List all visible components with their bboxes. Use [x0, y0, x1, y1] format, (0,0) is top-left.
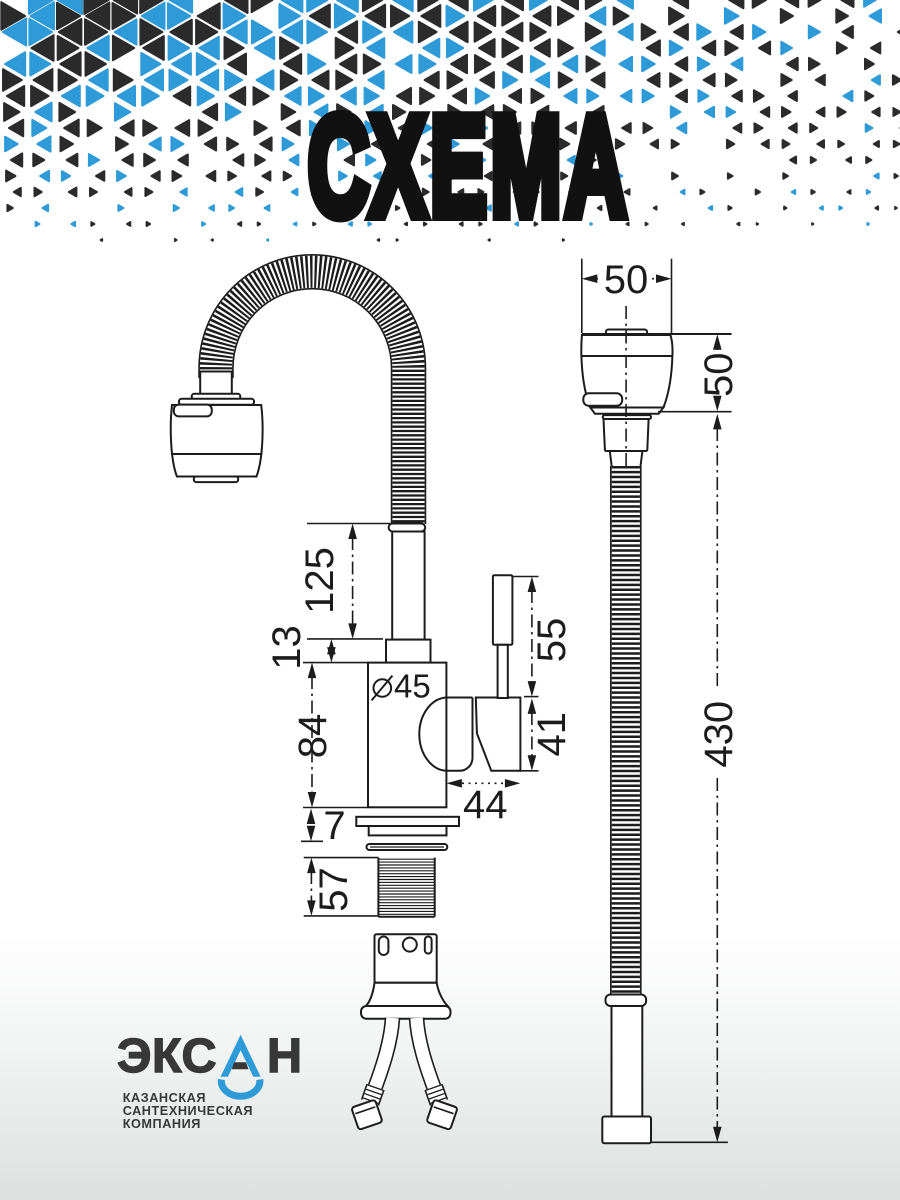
svg-text:Н: Н — [267, 1029, 302, 1083]
svg-text:13: 13 — [265, 625, 309, 670]
svg-text:50: 50 — [697, 353, 741, 398]
svg-text:КОМПАНИЯ: КОМПАНИЯ — [123, 1117, 201, 1131]
svg-text:САНТЕХНИЧЕСКАЯ: САНТЕХНИЧЕСКАЯ — [123, 1104, 253, 1118]
svg-text:КАЗАНСКАЯ: КАЗАНСКАЯ — [123, 1091, 206, 1105]
svg-text:50: 50 — [604, 258, 649, 302]
svg-text:55: 55 — [530, 618, 574, 663]
svg-text:ЭКС: ЭКС — [117, 1029, 217, 1083]
svg-text:125: 125 — [298, 547, 342, 614]
svg-text:430: 430 — [697, 701, 741, 768]
svg-text:45: 45 — [394, 668, 431, 705]
svg-text:84: 84 — [291, 714, 335, 759]
svg-text:57: 57 — [312, 867, 356, 912]
svg-text:СХЕМА: СХЕМА — [308, 86, 630, 245]
svg-text:41: 41 — [530, 712, 574, 757]
svg-text:44: 44 — [463, 783, 508, 827]
svg-text:7: 7 — [323, 804, 345, 848]
